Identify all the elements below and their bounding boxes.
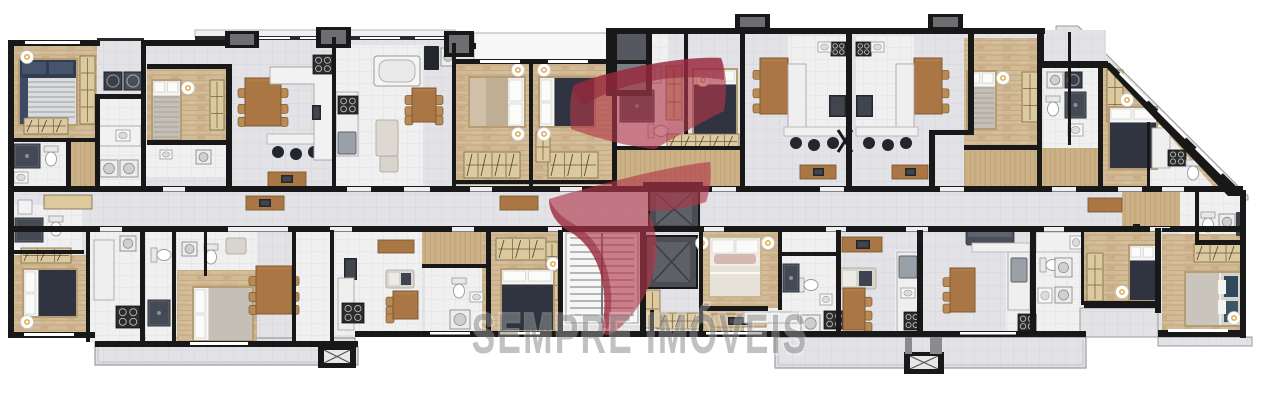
svg-text:SEMPRE IMÓVEIS: SEMPRE IMÓVEIS (472, 303, 809, 365)
